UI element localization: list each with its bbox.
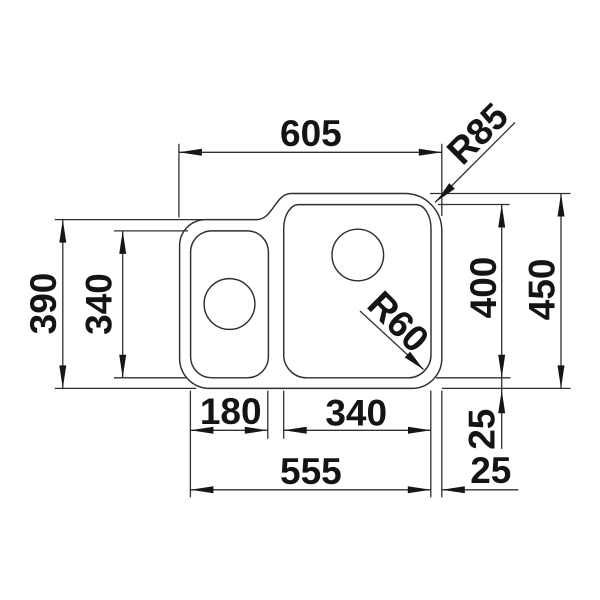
- svg-text:180: 180: [200, 391, 262, 432]
- svg-text:340: 340: [325, 393, 387, 434]
- svg-text:25: 25: [470, 450, 511, 491]
- svg-text:450: 450: [521, 259, 562, 321]
- svg-text:605: 605: [280, 113, 342, 154]
- svg-text:400: 400: [463, 257, 504, 319]
- svg-text:340: 340: [79, 273, 120, 335]
- svg-text:555: 555: [280, 451, 342, 492]
- svg-text:390: 390: [23, 273, 64, 335]
- svg-text:25: 25: [461, 409, 502, 450]
